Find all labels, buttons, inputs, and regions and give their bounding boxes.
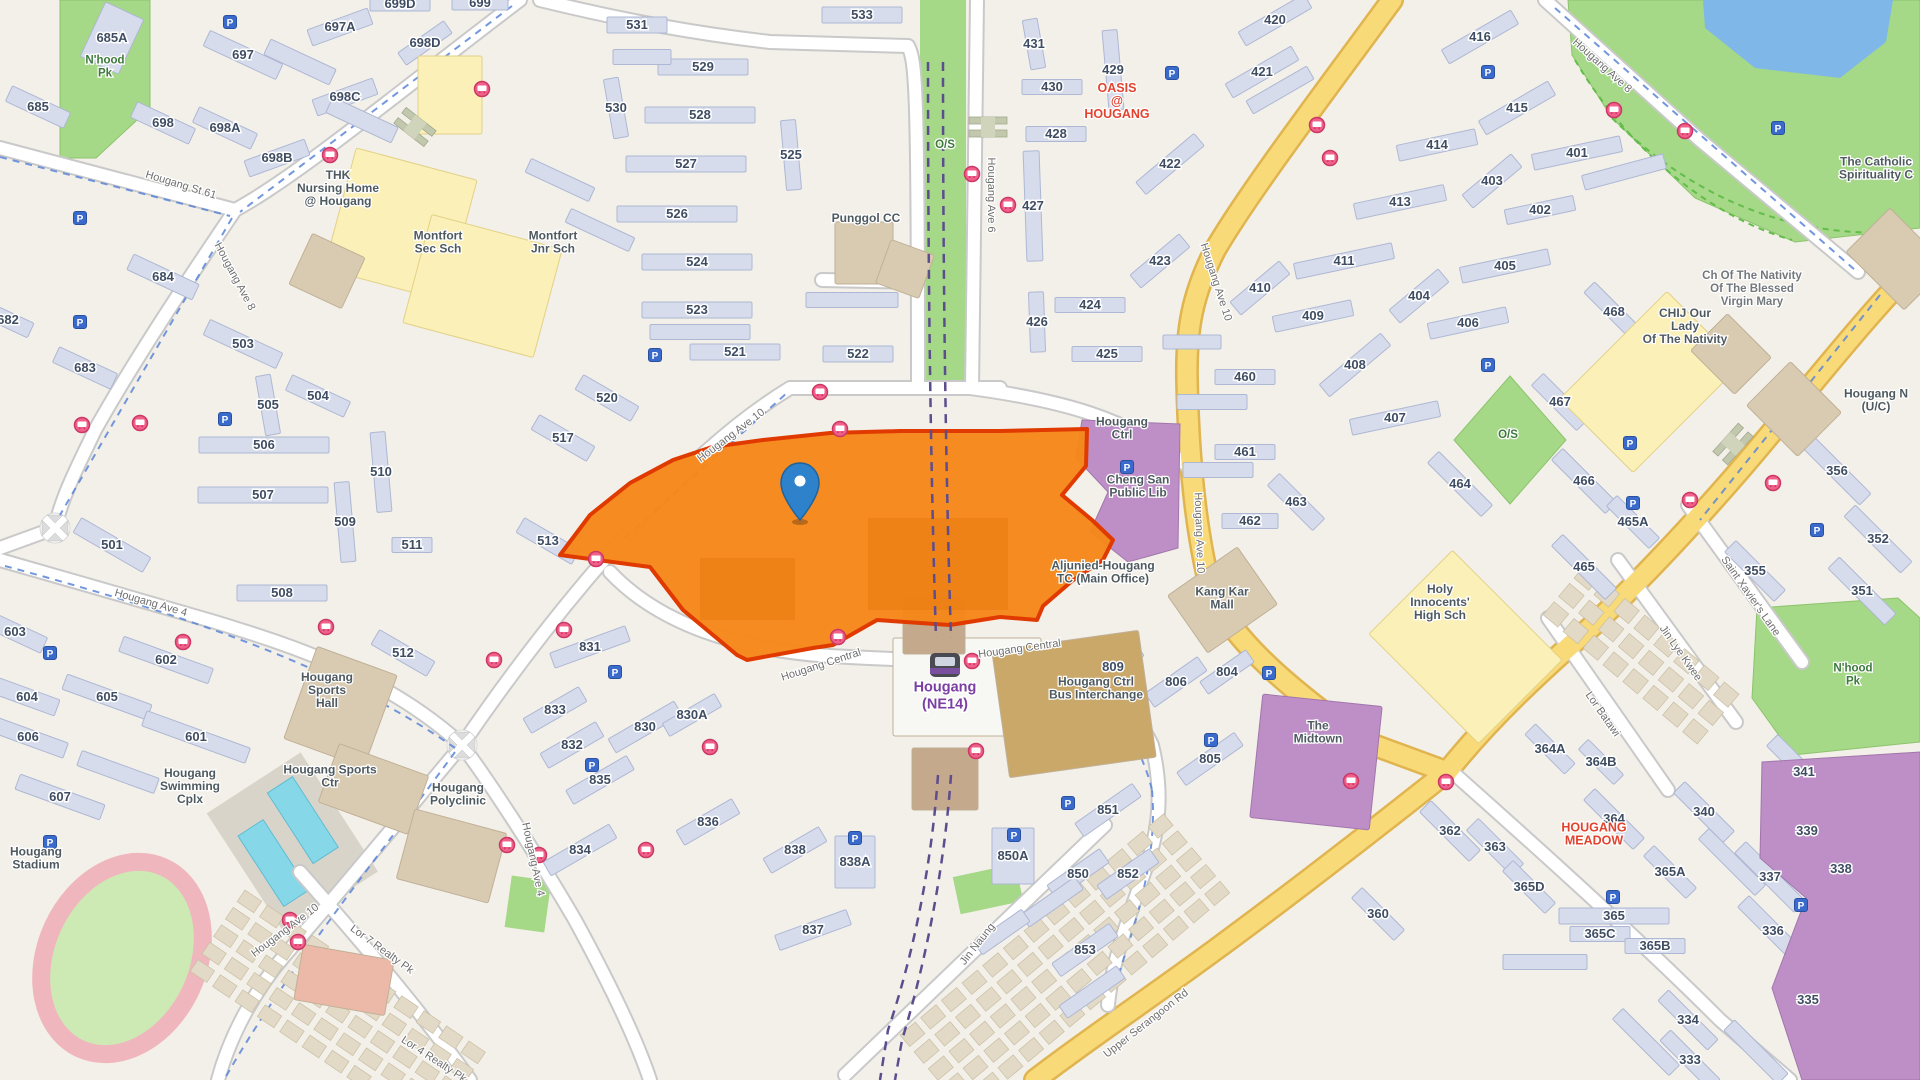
block-label: 837 [802,922,824,937]
bus-stop-icon [969,744,984,759]
bus-glyph [78,422,87,428]
block-label: 832 [561,737,583,752]
block-label: 351 [1851,583,1873,598]
parking-icon: P [1263,667,1276,680]
block-label: 508 [271,585,293,600]
parking-icon: P [1482,359,1495,372]
bus-wheel [969,176,971,178]
bus-wheel [327,157,329,159]
block-label: 685A [96,30,128,45]
block-label: 365A [1654,864,1686,879]
parking-icon: P [44,647,57,660]
block-label: 806 [1165,674,1187,689]
block-label: 465 [1573,559,1595,574]
block-label: 602 [155,652,177,667]
bus-wheel [1331,160,1333,162]
parking-letter: P [1169,69,1176,80]
bus-stop-icon [1344,774,1359,789]
block-label: 501 [101,537,123,552]
parking-letter: P [1610,893,1617,904]
block-label: 699D [384,0,415,11]
bus-wheel [643,852,645,854]
block-label: 525 [780,147,802,162]
block-label: 607 [49,789,71,804]
parking-icon: P [1482,66,1495,79]
bus-glyph [503,842,512,848]
block-label: 503 [232,336,254,351]
block-label: 464 [1449,476,1471,491]
bus-wheel [1770,485,1772,487]
parking-letter: P [222,415,229,426]
bus-glyph [322,624,331,630]
parking-letter: P [47,649,54,660]
bus-stop-icon [319,620,334,635]
block-label: 527 [675,156,697,171]
bus-wheel [504,847,506,849]
bus-wheel [184,644,186,646]
block-label: 838 [784,842,806,857]
bus-wheel [711,749,713,751]
block-label: 851 [1097,802,1119,817]
block-label: 509 [334,514,356,529]
parking-letter: P [1266,669,1273,680]
block-label: 521 [724,344,746,359]
block-label: 698B [261,150,292,165]
mrt-band [930,668,960,674]
block-label: 606 [17,729,39,744]
block-label: 467 [1549,394,1571,409]
bus-stop-icon [75,418,90,433]
parking-icon: P [1772,122,1785,135]
block-label: 838A [839,854,871,869]
bus-wheel [841,431,843,433]
landmark-label: HougangPolyclinic [430,781,486,808]
bus-wheel [479,91,481,93]
parking-icon: P [849,832,862,845]
bus-glyph [968,171,977,177]
landmark-label: Punggol CC [832,211,901,225]
block-label: 510 [370,464,392,479]
block-label: 402 [1529,202,1551,217]
landmark-label: O/S [1498,429,1518,441]
block-label: 505 [257,397,279,412]
bus-wheel [1009,207,1011,209]
block-label: 420 [1264,12,1286,27]
block-label: 338 [1830,861,1852,876]
block-label: 466 [1573,473,1595,488]
parking-icon: P [1607,891,1620,904]
bus-wheel [79,427,81,429]
bus-stop-icon [291,935,306,950]
block-label: 406 [1457,315,1479,330]
block-label: 513 [537,533,559,548]
bus-wheel [137,425,139,427]
parking-letter: P [1485,68,1492,79]
block-label: 850A [997,848,1029,863]
pin-hole [795,476,806,487]
block-label: 852 [1117,866,1139,881]
parking-letter: P [77,214,84,225]
block-label: 835 [589,772,611,787]
bus-wheel [973,663,975,665]
block-label: 830A [676,707,708,722]
block-label: 341 [1793,764,1815,779]
block-label: 522 [847,346,869,361]
block-label: 355 [1744,563,1766,578]
bus-wheel [327,629,329,631]
bus-wheel [1005,207,1007,209]
block-label: 833 [544,702,566,717]
bus-stop-icon [487,653,502,668]
landmark-label: Aljunied-HougangTC (Main Office) [1051,559,1154,586]
block-label: 524 [686,254,708,269]
block-label: 411 [1334,253,1355,268]
parking-icon: P [1627,497,1640,510]
bus-stop-icon [831,630,846,645]
block-label: 410 [1249,280,1271,295]
bus-stop-icon [1001,198,1016,213]
parking-icon: P [649,349,662,362]
block-label: 530 [605,100,627,115]
parking-icon: P [586,759,599,772]
parking-icon: P [1205,734,1218,747]
bus-wheel [295,944,297,946]
block-label: 403 [1481,173,1503,188]
bus-glyph [836,426,845,432]
building [806,293,898,308]
block-label: 699 [469,0,491,10]
bus-wheel [969,663,971,665]
building [1177,395,1247,410]
block-label: 698D [409,35,440,50]
block-label: 365 [1603,908,1625,923]
building [1163,335,1221,349]
building [650,325,750,340]
bus-wheel [565,632,567,634]
bus-stop-icon [1607,103,1622,118]
block-label: 682 [0,312,19,327]
map-canvas[interactable]: PPPPPPPPPPPPPPPPPPPPPPPPHougang St 61Hou… [0,0,1920,1080]
parking-letter: P [612,668,619,679]
block-label: 830 [634,719,656,734]
block-label: 352 [1867,531,1889,546]
bus-wheel [1348,783,1350,785]
parking-icon: P [1795,899,1808,912]
block-label: 337 [1759,869,1781,884]
block-label: 603 [4,624,26,639]
bus-stop-icon [323,148,338,163]
map-viewport[interactable]: PPPPPPPPPPPPPPPPPPPPPPPPHougang St 61Hou… [0,0,1920,1080]
landmark-label: Hougang(NE14) [914,680,977,713]
bus-wheel [593,561,595,563]
block-label: 414 [1426,137,1448,152]
parking-icon: P [74,212,87,225]
landmark-building [912,748,978,810]
block-label: 697A [324,19,356,34]
block-label: 404 [1408,288,1430,303]
bus-wheel [483,91,485,93]
bus-glyph [1326,155,1335,161]
block-label: 468 [1603,304,1625,319]
bus-wheel [1314,127,1316,129]
block-label: 506 [253,437,275,452]
block-label: 429 [1102,62,1124,77]
landmark-label: The CatholicSpirituality C [1839,155,1913,182]
block-label: 698A [209,120,241,135]
block-label: 365C [1584,926,1616,941]
bus-glyph [592,556,601,562]
bus-glyph [1686,497,1695,503]
bus-wheel [83,427,85,429]
bus-wheel [299,944,301,946]
block-label: 333 [1679,1052,1701,1067]
bus-stop-icon [965,167,980,182]
block-label: 364A [1534,741,1566,756]
parking-letter: P [1485,361,1492,372]
bus-wheel [1352,783,1354,785]
bus-stop-icon [500,838,515,853]
block-label: 526 [666,206,688,221]
bus-wheel [821,394,823,396]
bus-stop-icon [1766,476,1781,491]
bus-wheel [1615,112,1617,114]
bus-glyph [1004,202,1013,208]
block-label: 461 [1234,444,1256,459]
block-label: 853 [1074,942,1096,957]
bus-stop-icon [133,416,148,431]
block-label: 408 [1344,357,1366,372]
bus-wheel [141,425,143,427]
block-label: 431 [1023,36,1045,51]
bus-glyph [1681,128,1690,134]
bridge-deck [981,117,995,137]
bus-wheel [508,847,510,849]
bus-wheel [973,176,975,178]
bus-wheel [1327,160,1329,162]
bus-wheel [977,753,979,755]
bus-wheel [1687,502,1689,504]
block-label: 504 [307,388,329,403]
block-label: 523 [686,302,708,317]
bus-stop-icon [1323,151,1338,166]
parking-icon: P [1166,67,1179,80]
block-label: 836 [697,814,719,829]
selected-area-building [868,518,1008,610]
bus-glyph [478,86,487,92]
bus-stop-icon [1310,118,1325,133]
block-label: 684 [152,269,174,284]
block-label: 425 [1096,346,1118,361]
bus-stop-icon [176,635,191,650]
bus-wheel [491,662,493,664]
block-label: 421 [1251,64,1273,79]
bus-glyph [972,748,981,754]
bus-wheel [495,662,497,664]
block-label: 511 [402,537,423,552]
block-label: 363 [1484,839,1506,854]
road-label: Hougang Ave 6 [985,157,997,232]
bus-glyph [968,658,977,664]
bus-wheel [973,753,975,755]
block-label: 416 [1469,29,1491,44]
block-label: 422 [1159,156,1181,171]
block-label: 834 [569,842,591,857]
bus-wheel [180,644,182,646]
block-label: 512 [392,645,414,660]
block-label: 360 [1367,906,1389,921]
parking-letter: P [77,318,84,329]
block-label: 364B [1585,754,1616,769]
bus-glyph [294,939,303,945]
bus-glyph [560,627,569,633]
parking-letter: P [652,351,659,362]
bus-glyph [706,744,715,750]
block-label: 401 [1566,145,1588,160]
block-label: 335 [1797,992,1819,1007]
bus-wheel [837,431,839,433]
bus-stop-icon [833,422,848,437]
bus-stop-icon [703,740,718,755]
parking-icon: P [219,413,232,426]
bus-wheel [1686,133,1688,135]
block-label: 427 [1022,198,1044,213]
bus-glyph [1769,480,1778,486]
block-label: 533 [851,7,873,22]
bus-wheel [323,629,325,631]
parking-letter: P [589,761,596,772]
bus-wheel [597,561,599,563]
block-label: 697 [232,47,254,62]
bus-stop-icon [1678,124,1693,139]
bus-wheel [647,852,649,854]
parking-letter: P [227,18,234,29]
bus-wheel [1318,127,1320,129]
block-label: 685 [27,99,49,114]
bus-glyph [834,634,843,640]
landmark-label: MontfortSec Sch [414,229,463,256]
block-label: 850 [1067,866,1089,881]
parking-letter: P [1065,799,1072,810]
selected-area-building [700,558,795,620]
block-label: 531 [626,17,648,32]
landmark-label: HougangStadium [10,845,62,872]
building [613,50,671,65]
bus-wheel [561,632,563,634]
bus-wheel [540,857,542,859]
block-label: 405 [1494,258,1516,273]
bus-glyph [816,389,825,395]
parking-letter: P [852,834,859,845]
landmark-label: Hougang CtrlBus Interchange [1049,675,1143,702]
parking-letter: P [1775,124,1782,135]
block-label: 601 [185,729,207,744]
parking-letter: P [1011,831,1018,842]
road-minor [972,0,977,388]
bus-stop-icon [1683,493,1698,508]
block-label: 339 [1796,823,1818,838]
parking-letter: P [1798,901,1805,912]
bus-wheel [1611,112,1613,114]
bus-stop-icon [639,843,654,858]
landmark-label: MontfortJnr Sch [529,229,578,256]
bus-stop-icon [557,623,572,638]
block-label: 340 [1693,804,1715,819]
block-label: 809 [1102,659,1124,674]
bus-wheel [707,749,709,751]
parking-letter: P [1627,439,1634,450]
block-label: 520 [596,390,618,405]
landmark-label: HOUGANGMEADOW [1561,821,1626,848]
block-label: 605 [96,689,118,704]
bus-wheel [1447,784,1449,786]
block-label: 463 [1285,494,1307,509]
block-label: 529 [692,59,714,74]
parking-letter: P [1208,736,1215,747]
bus-wheel [331,157,333,159]
block-label: 409 [1302,308,1324,323]
bus-glyph [326,152,335,158]
parking-icon: P [74,316,87,329]
parking-icon: P [1008,829,1021,842]
bus-wheel [1691,502,1693,504]
block-label: 365D [1513,879,1544,894]
block-label: 424 [1079,297,1101,312]
bus-stop-icon [589,552,604,567]
bus-wheel [1682,133,1684,135]
block-label: 334 [1677,1012,1699,1027]
landmark-building [418,56,482,134]
bus-wheel [817,394,819,396]
block-label: 356 [1826,463,1848,478]
block-label: 423 [1149,253,1171,268]
mrt-window [935,657,955,666]
landmark-building [1250,694,1382,830]
bus-glyph [1347,778,1356,784]
block-label: 528 [689,107,711,122]
block-label: 430 [1041,79,1063,94]
block-label: 804 [1216,664,1238,679]
bus-wheel [835,639,837,641]
block-label: 428 [1045,126,1067,141]
bus-stop-icon [475,82,490,97]
bus-stop-icon [965,654,980,669]
bus-glyph [136,420,145,426]
block-label: 336 [1762,923,1784,938]
bus-wheel [839,639,841,641]
parking-letter: P [1814,526,1821,537]
bus-wheel [1774,485,1776,487]
bus-glyph [179,639,188,645]
block-label: 465A [1617,514,1649,529]
parking-icon: P [609,666,622,679]
block-label: 413 [1389,194,1411,209]
block-label: 426 [1026,314,1048,329]
block-label: 507 [252,487,274,502]
parking-letter: P [1630,499,1637,510]
bus-stop-icon [813,385,828,400]
parking-icon: P [1811,524,1824,537]
parking-icon: P [1624,437,1637,450]
block-label: 604 [16,689,38,704]
block-label: 365B [1639,938,1670,953]
bus-glyph [1442,779,1451,785]
block-label: 805 [1199,751,1221,766]
parking-icon: P [224,16,237,29]
bus-wheel [1443,784,1445,786]
bus-glyph [490,657,499,663]
parking-icon: P [1062,797,1075,810]
block-label: 407 [1384,410,1406,425]
